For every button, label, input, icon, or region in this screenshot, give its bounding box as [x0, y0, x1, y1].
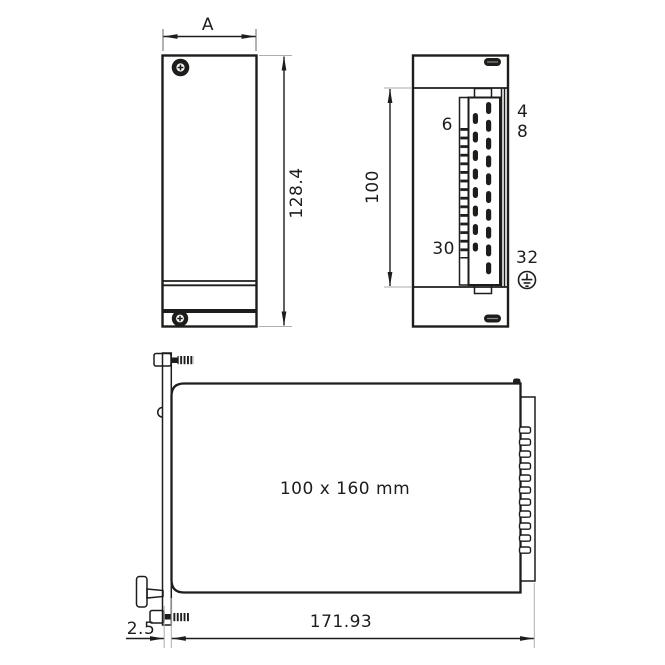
- pin-label-8: 8: [517, 122, 528, 142]
- dim-25-label: 2.5: [127, 619, 156, 639]
- front-view: [163, 29, 293, 327]
- pin-label-30: 30: [432, 239, 455, 259]
- dim-length-label: 171.93: [310, 612, 372, 632]
- side-screw-top-icon: [154, 354, 194, 367]
- side-view: [126, 353, 535, 648]
- rear-screw-slot-bottom-icon: [484, 315, 501, 323]
- pcb-corner-nub: [513, 379, 521, 385]
- front-screw-top-icon: [172, 59, 190, 77]
- dim-100-label: 100: [363, 170, 383, 204]
- rear-screw-slot-top-icon: [484, 58, 501, 66]
- pin-label-32: 32: [516, 248, 539, 268]
- pin-label-4: 4: [517, 102, 528, 122]
- dim-height-label: 128.4: [287, 167, 307, 218]
- board-size-label: 100 x 160 mm: [280, 479, 410, 499]
- handle-knob: [137, 577, 148, 608]
- dim-a-label: A: [202, 15, 214, 35]
- drawing-linework: A 128.4 6 30 4 8 32 100 100 x 160 mm 171…: [0, 0, 665, 665]
- rear-view: [384, 56, 536, 327]
- handle-stem: [147, 589, 163, 598]
- connector-contact-strip-contacts: [460, 128, 467, 259]
- side-front-panel: [163, 353, 172, 625]
- technical-drawing-canvas: A 128.4 6 30 4 8 32 100 100 x 160 mm 171…: [0, 0, 665, 665]
- front-screw-bottom-icon: [172, 310, 188, 326]
- earth-ground-icon: [519, 272, 536, 289]
- side-screw-bottom-icon: [150, 611, 190, 624]
- pin-label-6: 6: [442, 115, 453, 135]
